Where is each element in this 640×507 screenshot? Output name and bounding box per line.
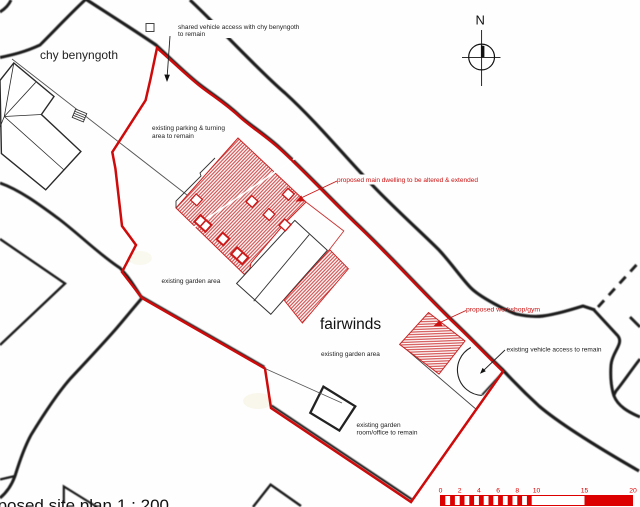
svg-text:area to remain: area to remain: [152, 133, 194, 140]
svg-text:8: 8: [515, 488, 519, 495]
svg-text:15: 15: [581, 488, 589, 495]
svg-text:existing garden: existing garden: [357, 422, 401, 429]
svg-text:fairwinds: fairwinds: [320, 316, 381, 333]
svg-text:to remain: to remain: [178, 31, 205, 38]
svg-text:proposed site plan: proposed site plan: [0, 496, 112, 507]
svg-text:2: 2: [458, 488, 462, 495]
svg-text:existing garden area: existing garden area: [162, 278, 221, 285]
svg-text:0: 0: [439, 488, 443, 495]
svg-text:chy benyngoth: chy benyngoth: [40, 48, 118, 62]
svg-text:existing garden area: existing garden area: [321, 351, 380, 358]
svg-text:4: 4: [477, 488, 481, 495]
svg-text:room/office to remain: room/office to remain: [357, 430, 418, 437]
svg-text:existing parking & turning: existing parking & turning: [152, 125, 225, 132]
svg-text:N: N: [476, 13, 485, 28]
svg-text:10: 10: [533, 488, 541, 495]
svg-text:20: 20: [629, 488, 637, 495]
svg-text:proposed main dwelling to be a: proposed main dwelling to be altered & e…: [337, 177, 478, 184]
svg-text:6: 6: [496, 488, 500, 495]
svg-text:proposed workshop/gym: proposed workshop/gym: [466, 307, 540, 314]
svg-text:existing vehicle access to rem: existing vehicle access to remain: [507, 347, 602, 354]
svg-text:1 : 200: 1 : 200: [117, 496, 169, 507]
